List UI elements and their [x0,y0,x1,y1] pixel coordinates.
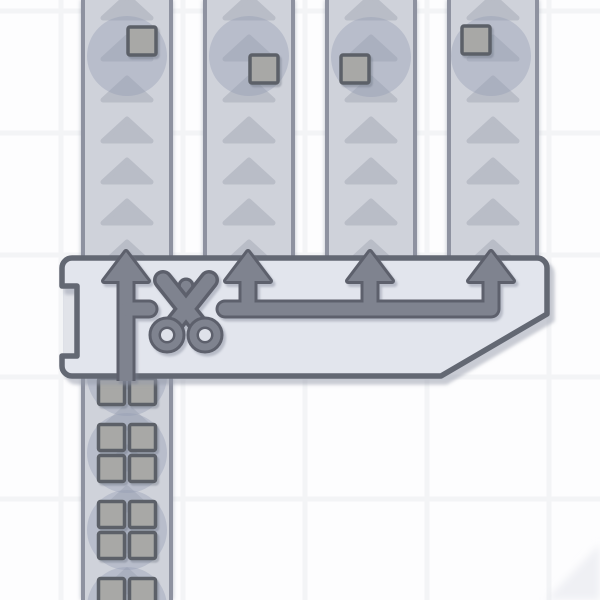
game-viewport[interactable] [0,0,600,600]
game-stage [0,0,600,600]
item-full-square [87,490,167,570]
item-quarter-square-top-right [87,16,167,96]
item-full-square [87,413,167,493]
item-quarter-square-bottom-left [331,17,411,97]
building-notch-shade [63,288,76,354]
item-quarter-square-bottom-right [209,16,289,96]
item-quarter-square-top-left [451,16,531,96]
